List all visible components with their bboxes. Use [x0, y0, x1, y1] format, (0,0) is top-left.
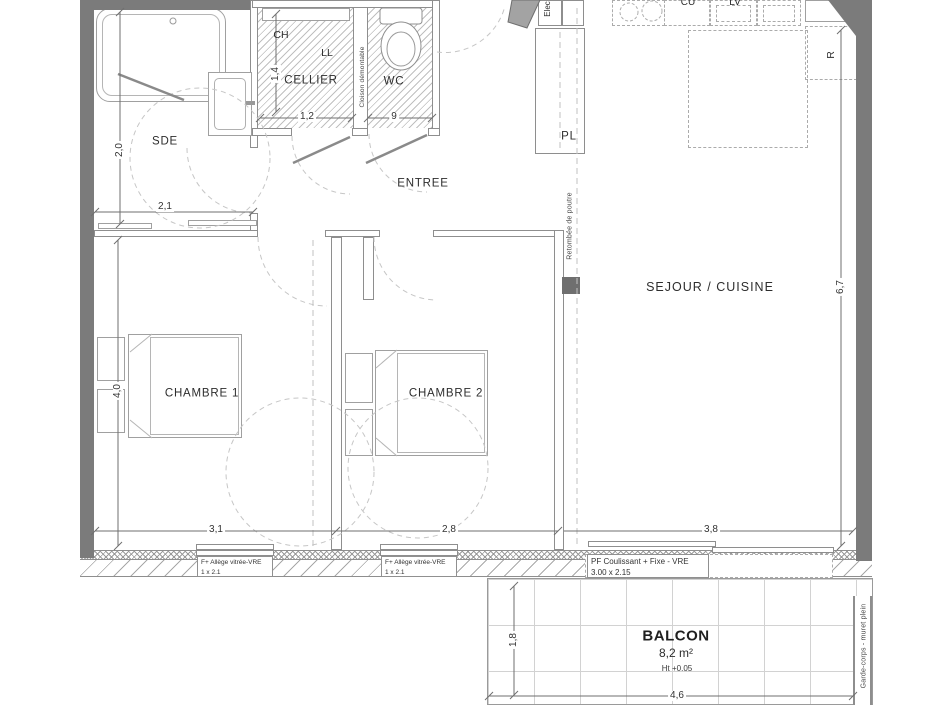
- floor-plan: F+ Allège vitrée-VRE 1 x 2.1 F+ Allège v…: [0, 0, 940, 705]
- dim-bay-w: 3,8: [702, 525, 720, 535]
- dim-cellier-h: 1,4: [271, 65, 281, 83]
- dim-balcon-w: 4,6: [668, 691, 686, 701]
- dashed-guides: [313, 8, 577, 548]
- balcon-height: Ht +0.05: [662, 665, 692, 673]
- annotation-poutre: Retombée de poutre: [567, 192, 574, 259]
- dim-cellier-w: 1,2: [298, 112, 316, 122]
- dim-ch2-w: 2,8: [440, 525, 458, 535]
- wall-right-slant: [828, 0, 872, 36]
- annotation-cloison: Cloison démontable: [360, 46, 367, 107]
- plan-linework: [0, 0, 940, 705]
- dim-ch1-w: 3,1: [207, 525, 225, 535]
- room-label-pl: PL: [561, 131, 577, 143]
- room-label-entree: ENTREE: [397, 178, 448, 190]
- door-swing-arcs: [187, 6, 505, 306]
- dim-wc-w: 9: [389, 112, 399, 122]
- balcon-area: 8,2 m²: [659, 647, 693, 659]
- label-ll: LL: [321, 48, 333, 59]
- room-label-balcon: BALCON: [642, 629, 709, 644]
- dim-balcon-d: 1,8: [509, 631, 519, 649]
- shower-drain: [170, 18, 176, 24]
- entrance-door-leaf: [508, 0, 540, 28]
- room-label-chambre2: CHAMBRE 2: [409, 388, 483, 400]
- dimension-lines: [91, 8, 857, 700]
- room-label-sde: SDE: [152, 136, 178, 148]
- label-fridge: R: [826, 51, 837, 59]
- dim-sde-h: 2,0: [115, 141, 125, 159]
- room-label-cellier: CELLIER: [284, 75, 338, 87]
- dim-sde-w: 2,1: [156, 202, 174, 212]
- label-lv: LV: [729, 0, 741, 8]
- room-label-sejour: SEJOUR / CUISINE: [646, 281, 774, 294]
- dim-sejour-h: 6,7: [836, 278, 846, 296]
- label-elec: Elec: [544, 1, 552, 17]
- dim-ch1-h: 4,0: [113, 382, 123, 400]
- toilet-icon: [380, 8, 422, 70]
- label-ch: CH: [273, 30, 288, 41]
- room-label-wc: WC: [384, 76, 405, 88]
- label-cu: CU: [681, 0, 695, 8]
- room-label-chambre1: CHAMBRE 1: [165, 388, 239, 400]
- annotation-garde-corps: Garde-corps - muret plein: [861, 604, 868, 689]
